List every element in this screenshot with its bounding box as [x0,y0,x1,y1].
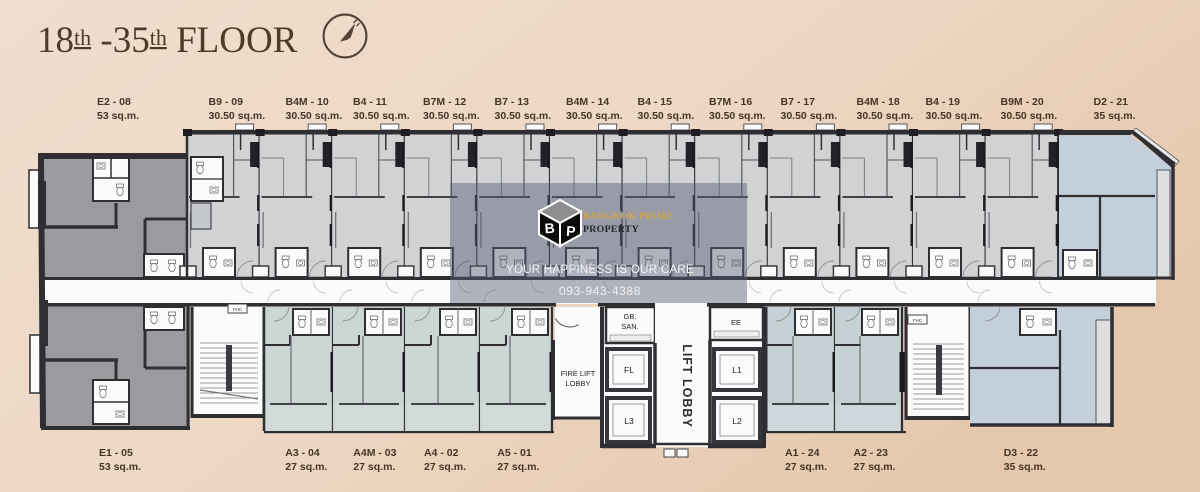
svg-text:35 sq.m.: 35 sq.m. [1094,110,1136,122]
svg-text:FHC: FHC [913,318,923,323]
svg-text:B7 - 17: B7 - 17 [781,96,816,108]
svg-text:A2 - 23: A2 - 23 [854,447,889,459]
svg-text:A4 - 02: A4 - 02 [424,447,459,459]
svg-text:A1 - 24: A1 - 24 [785,447,820,459]
svg-text:D2 - 21: D2 - 21 [1094,96,1129,108]
svg-text:YOUR HAPPINESS IS OUR CARE: YOUR HAPPINESS IS OUR CARE [506,264,694,276]
svg-text:E1 - 05: E1 - 05 [99,447,133,459]
svg-text:B4M - 18: B4M - 18 [857,96,900,108]
svg-text:B4 - 19: B4 - 19 [926,96,961,108]
svg-text:30.50 sq.m.: 30.50 sq.m. [857,110,914,122]
svg-text:EE: EE [731,318,741,327]
svg-text:B7M - 16: B7M - 16 [709,96,752,108]
svg-text:30.50 sq.m.: 30.50 sq.m. [1001,110,1058,122]
svg-text:B7M - 12: B7M - 12 [423,96,466,108]
svg-text:A5 - 01: A5 - 01 [497,447,532,459]
svg-text:30.50 sq.m.: 30.50 sq.m. [423,110,480,122]
svg-text:27 sq.m.: 27 sq.m. [285,461,327,473]
svg-text:B9M - 20: B9M - 20 [1001,96,1044,108]
svg-text:B7 - 13: B7 - 13 [495,96,530,108]
svg-text:30.50 sq.m.: 30.50 sq.m. [495,110,552,122]
svg-text:53 sq.m.: 53 sq.m. [99,461,141,473]
svg-text:27 sq.m.: 27 sq.m. [785,461,827,473]
svg-text:GB.: GB. [624,312,637,321]
svg-text:B9 - 09: B9 - 09 [209,96,244,108]
svg-text:093-943-4388: 093-943-4388 [559,284,641,298]
svg-text:B4 - 15: B4 - 15 [638,96,673,108]
svg-text:27 sq.m.: 27 sq.m. [424,461,466,473]
svg-text:E2 - 08: E2 - 08 [97,96,131,108]
svg-text:27 sq.m.: 27 sq.m. [353,461,395,473]
svg-text:FL: FL [624,365,634,375]
svg-text:BANGKOK PRIME: BANGKOK PRIME [583,211,673,222]
svg-text:L3: L3 [624,416,634,426]
svg-text:P: P [566,223,576,240]
svg-text:SAN.: SAN. [621,322,639,331]
svg-text:35 sq.m.: 35 sq.m. [1004,461,1046,473]
svg-text:FHC: FHC [233,307,243,312]
svg-text:FIRE LIFT: FIRE LIFT [561,369,596,378]
svg-text:LIFT LOBBY: LIFT LOBBY [680,344,694,428]
svg-text:B4M - 14: B4M - 14 [566,96,609,108]
svg-text:30.50 sq.m.: 30.50 sq.m. [209,110,266,122]
svg-text:L2: L2 [732,416,742,426]
svg-text:L1: L1 [732,365,742,375]
svg-text:30.50 sq.m.: 30.50 sq.m. [286,110,343,122]
svg-text:A4M - 03: A4M - 03 [353,447,396,459]
svg-text:27 sq.m.: 27 sq.m. [854,461,896,473]
svg-text:B4M - 10: B4M - 10 [286,96,329,108]
svg-text:LOBBY: LOBBY [565,379,590,388]
svg-text:B4 - 11: B4 - 11 [353,96,387,108]
svg-text:30.50 sq.m.: 30.50 sq.m. [353,110,410,122]
svg-text:PROPERTY: PROPERTY [583,224,639,235]
svg-text:30.50 sq.m.: 30.50 sq.m. [926,110,983,122]
svg-text:B: B [544,220,555,237]
svg-text:A3 - 04: A3 - 04 [285,447,320,459]
svg-text:30.50 sq.m.: 30.50 sq.m. [781,110,838,122]
svg-text:D3 - 22: D3 - 22 [1004,447,1039,459]
svg-text:30.50 sq.m.: 30.50 sq.m. [709,110,766,122]
svg-text:53 sq.m.: 53 sq.m. [97,110,139,122]
svg-text:30.50 sq.m.: 30.50 sq.m. [638,110,695,122]
svg-text:27 sq.m.: 27 sq.m. [497,461,539,473]
svg-text:30.50 sq.m.: 30.50 sq.m. [566,110,623,122]
